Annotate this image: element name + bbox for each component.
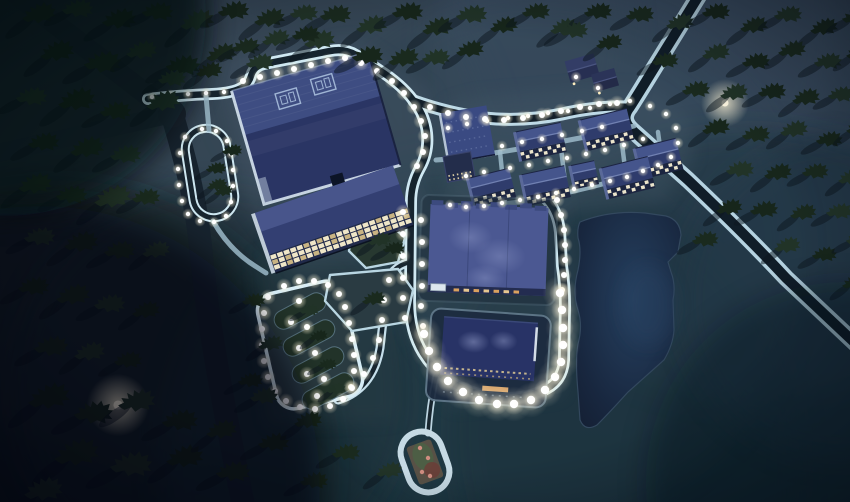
viewport: Night aerial 3D render of a lit campus w…	[0, 0, 850, 502]
campus-night-render: Night aerial 3D render of a lit campus w…	[0, 0, 850, 502]
layer-vignette	[0, 0, 850, 502]
